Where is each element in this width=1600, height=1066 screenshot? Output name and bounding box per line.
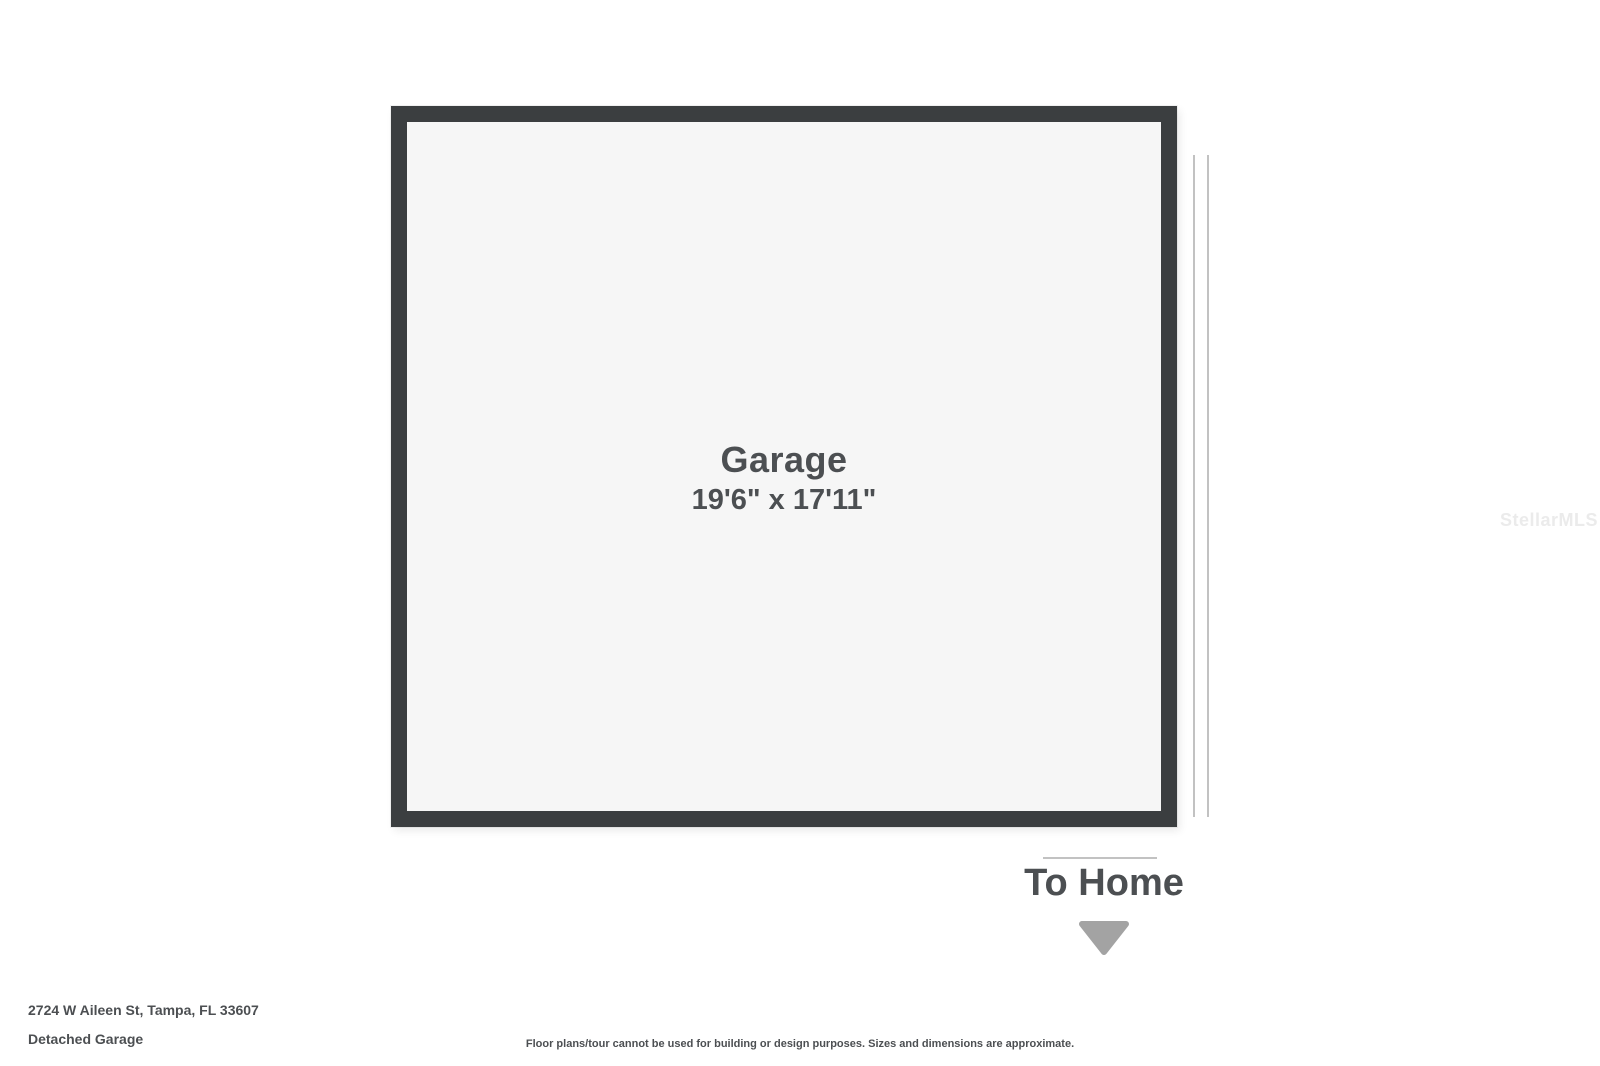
property-address: 2724 W Aileen St, Tampa, FL 33607	[28, 1002, 259, 1018]
room-dimensions: 19'6" x 17'11"	[407, 482, 1161, 519]
room-garage: Garage 19'6" x 17'11"	[407, 122, 1161, 811]
room-label: Garage 19'6" x 17'11"	[407, 438, 1161, 519]
disclaimer-text: Floor plans/tour cannot be used for buil…	[0, 1038, 1600, 1050]
stellar-mls-watermark: StellarMLS	[1500, 510, 1598, 531]
room-name: Garage	[407, 438, 1161, 482]
doorway-to-home	[1043, 843, 1157, 859]
down-arrow-icon	[1077, 920, 1131, 956]
floorplan-canvas: Garage 19'6" x 17'11" To Home StellarMLS…	[0, 0, 1600, 1066]
to-home-label: To Home	[1004, 862, 1204, 904]
garage-door-opening	[1193, 155, 1209, 817]
to-home-indicator: To Home	[1004, 862, 1204, 961]
garage-floorplan: Garage 19'6" x 17'11"	[391, 106, 1177, 827]
